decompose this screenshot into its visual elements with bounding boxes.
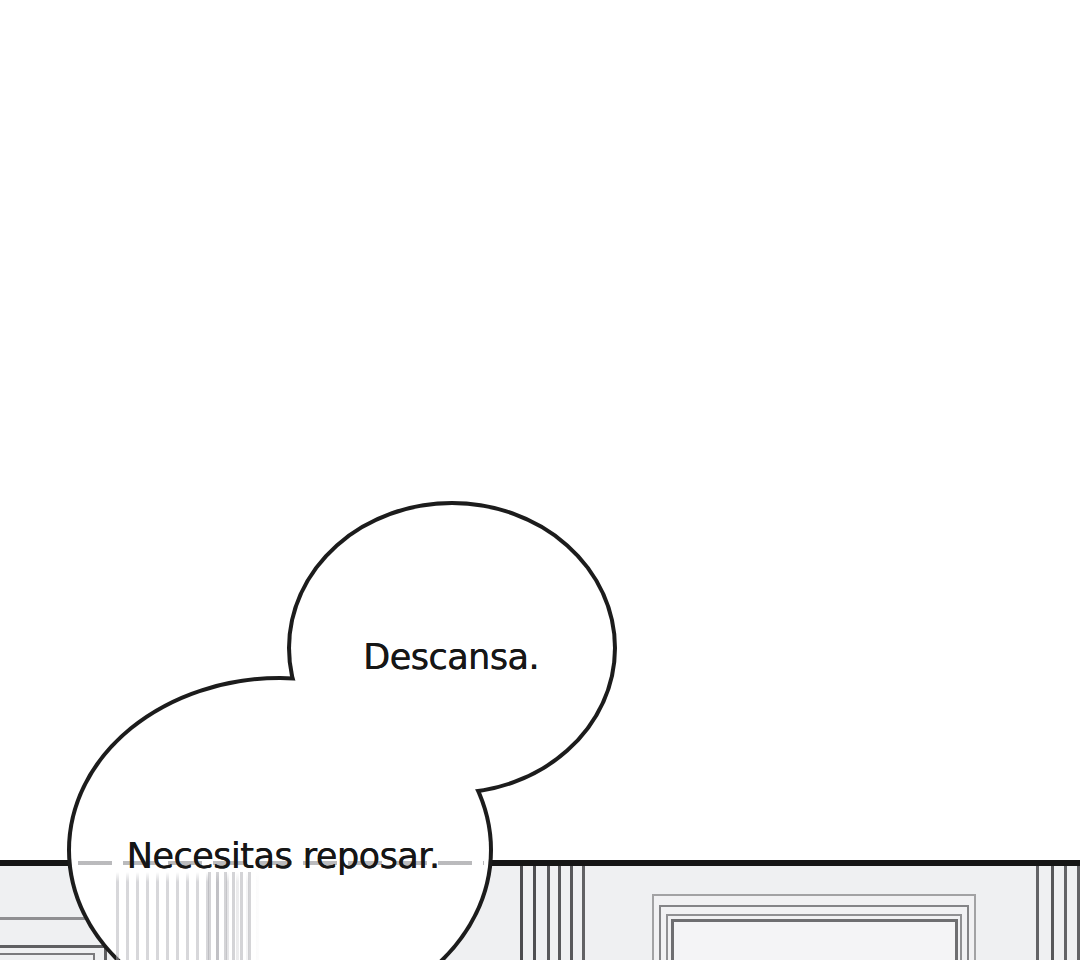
bubble-text-top: Descansa.: [363, 640, 539, 675]
speech-bubbles: [0, 0, 1080, 960]
wall-column-stripes-showthrough: [116, 872, 268, 960]
comic-panel: Descansa. Necesitas reposar.: [0, 0, 1080, 960]
wall-column-stripes-dense: [208, 872, 252, 960]
bubble-text-bottom: Necesitas reposar.: [127, 839, 440, 874]
